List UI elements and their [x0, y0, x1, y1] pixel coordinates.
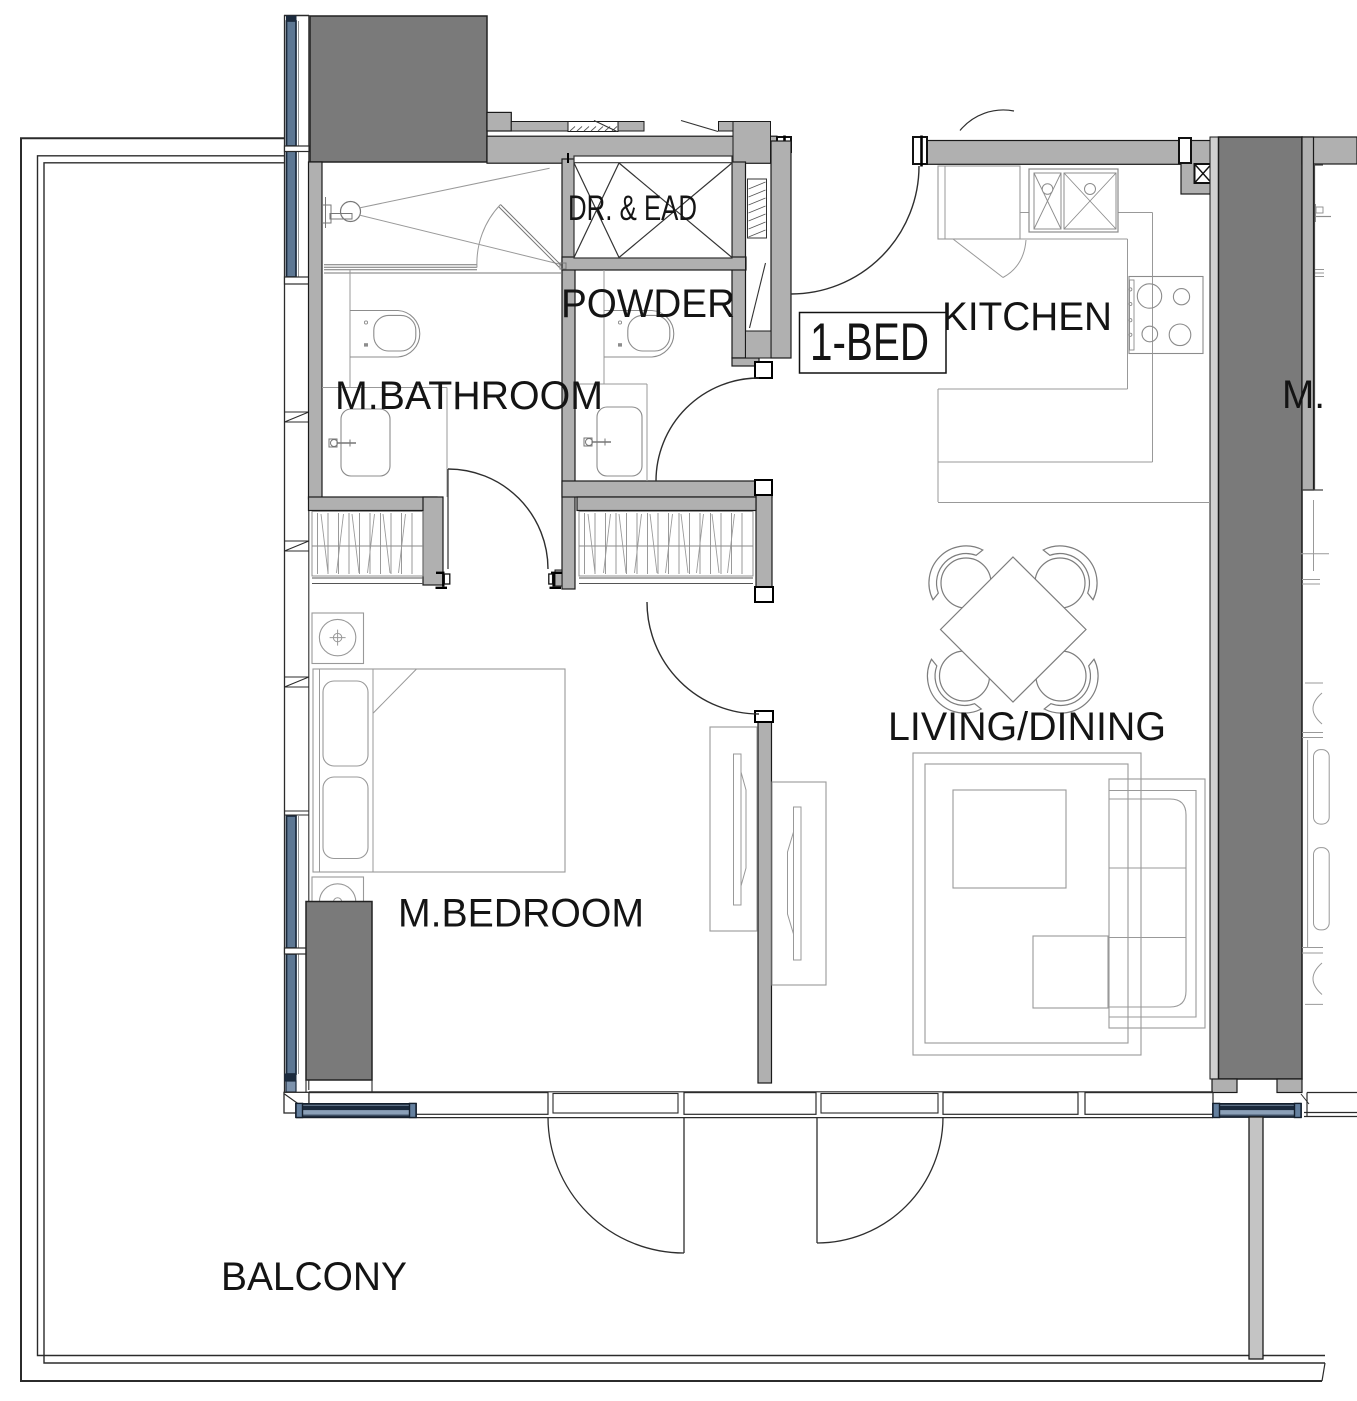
svg-text:M.BATHROOM: M.BATHROOM: [335, 374, 603, 418]
svg-text:M.BEDROOM: M.BEDROOM: [398, 892, 644, 936]
svg-text:BALCONY: BALCONY: [221, 1255, 407, 1299]
svg-text:M.: M.: [1282, 373, 1325, 417]
svg-text:LIVING/DINING: LIVING/DINING: [888, 705, 1166, 749]
svg-text:1-BED: 1-BED: [810, 313, 929, 372]
svg-text:KITCHEN: KITCHEN: [942, 295, 1112, 339]
svg-text:DR. & EAD: DR. & EAD: [568, 189, 697, 228]
svg-text:POWDER: POWDER: [561, 282, 735, 326]
